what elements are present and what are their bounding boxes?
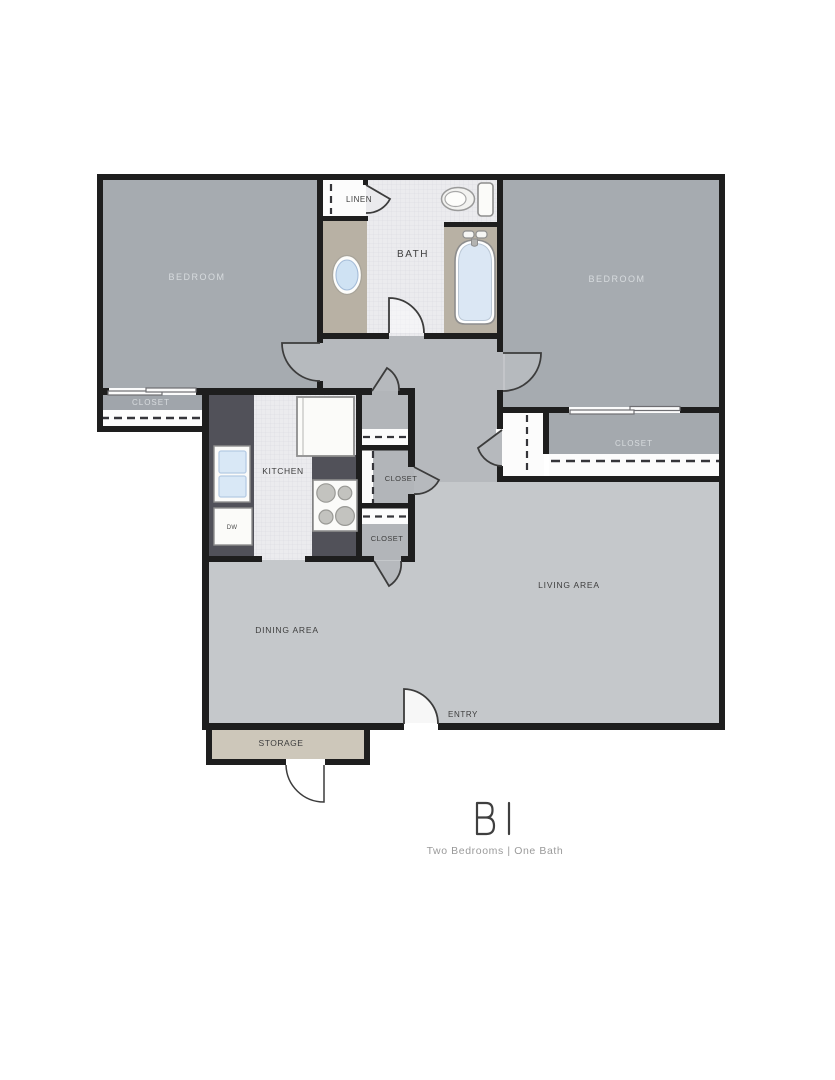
- svg-text:BATH: BATH: [397, 249, 429, 260]
- svg-text:CLOSET: CLOSET: [132, 398, 170, 407]
- svg-text:CLOSET: CLOSET: [615, 439, 653, 448]
- svg-text:KITCHEN: KITCHEN: [262, 466, 304, 476]
- svg-text:BEDROOM: BEDROOM: [168, 272, 225, 282]
- svg-text:ENTRY: ENTRY: [448, 710, 478, 719]
- svg-text:CLOSET: CLOSET: [385, 474, 417, 483]
- svg-text:STORAGE: STORAGE: [259, 738, 304, 748]
- svg-text:LIVING AREA: LIVING AREA: [538, 580, 600, 590]
- svg-text:DW: DW: [227, 525, 238, 531]
- svg-text:Two Bedrooms | One Bath: Two Bedrooms | One Bath: [427, 845, 564, 857]
- svg-text:CLOSET: CLOSET: [371, 534, 403, 543]
- svg-text:DINING AREA: DINING AREA: [255, 625, 319, 635]
- svg-text:BEDROOM: BEDROOM: [588, 274, 645, 284]
- svg-text:LINEN: LINEN: [346, 195, 372, 204]
